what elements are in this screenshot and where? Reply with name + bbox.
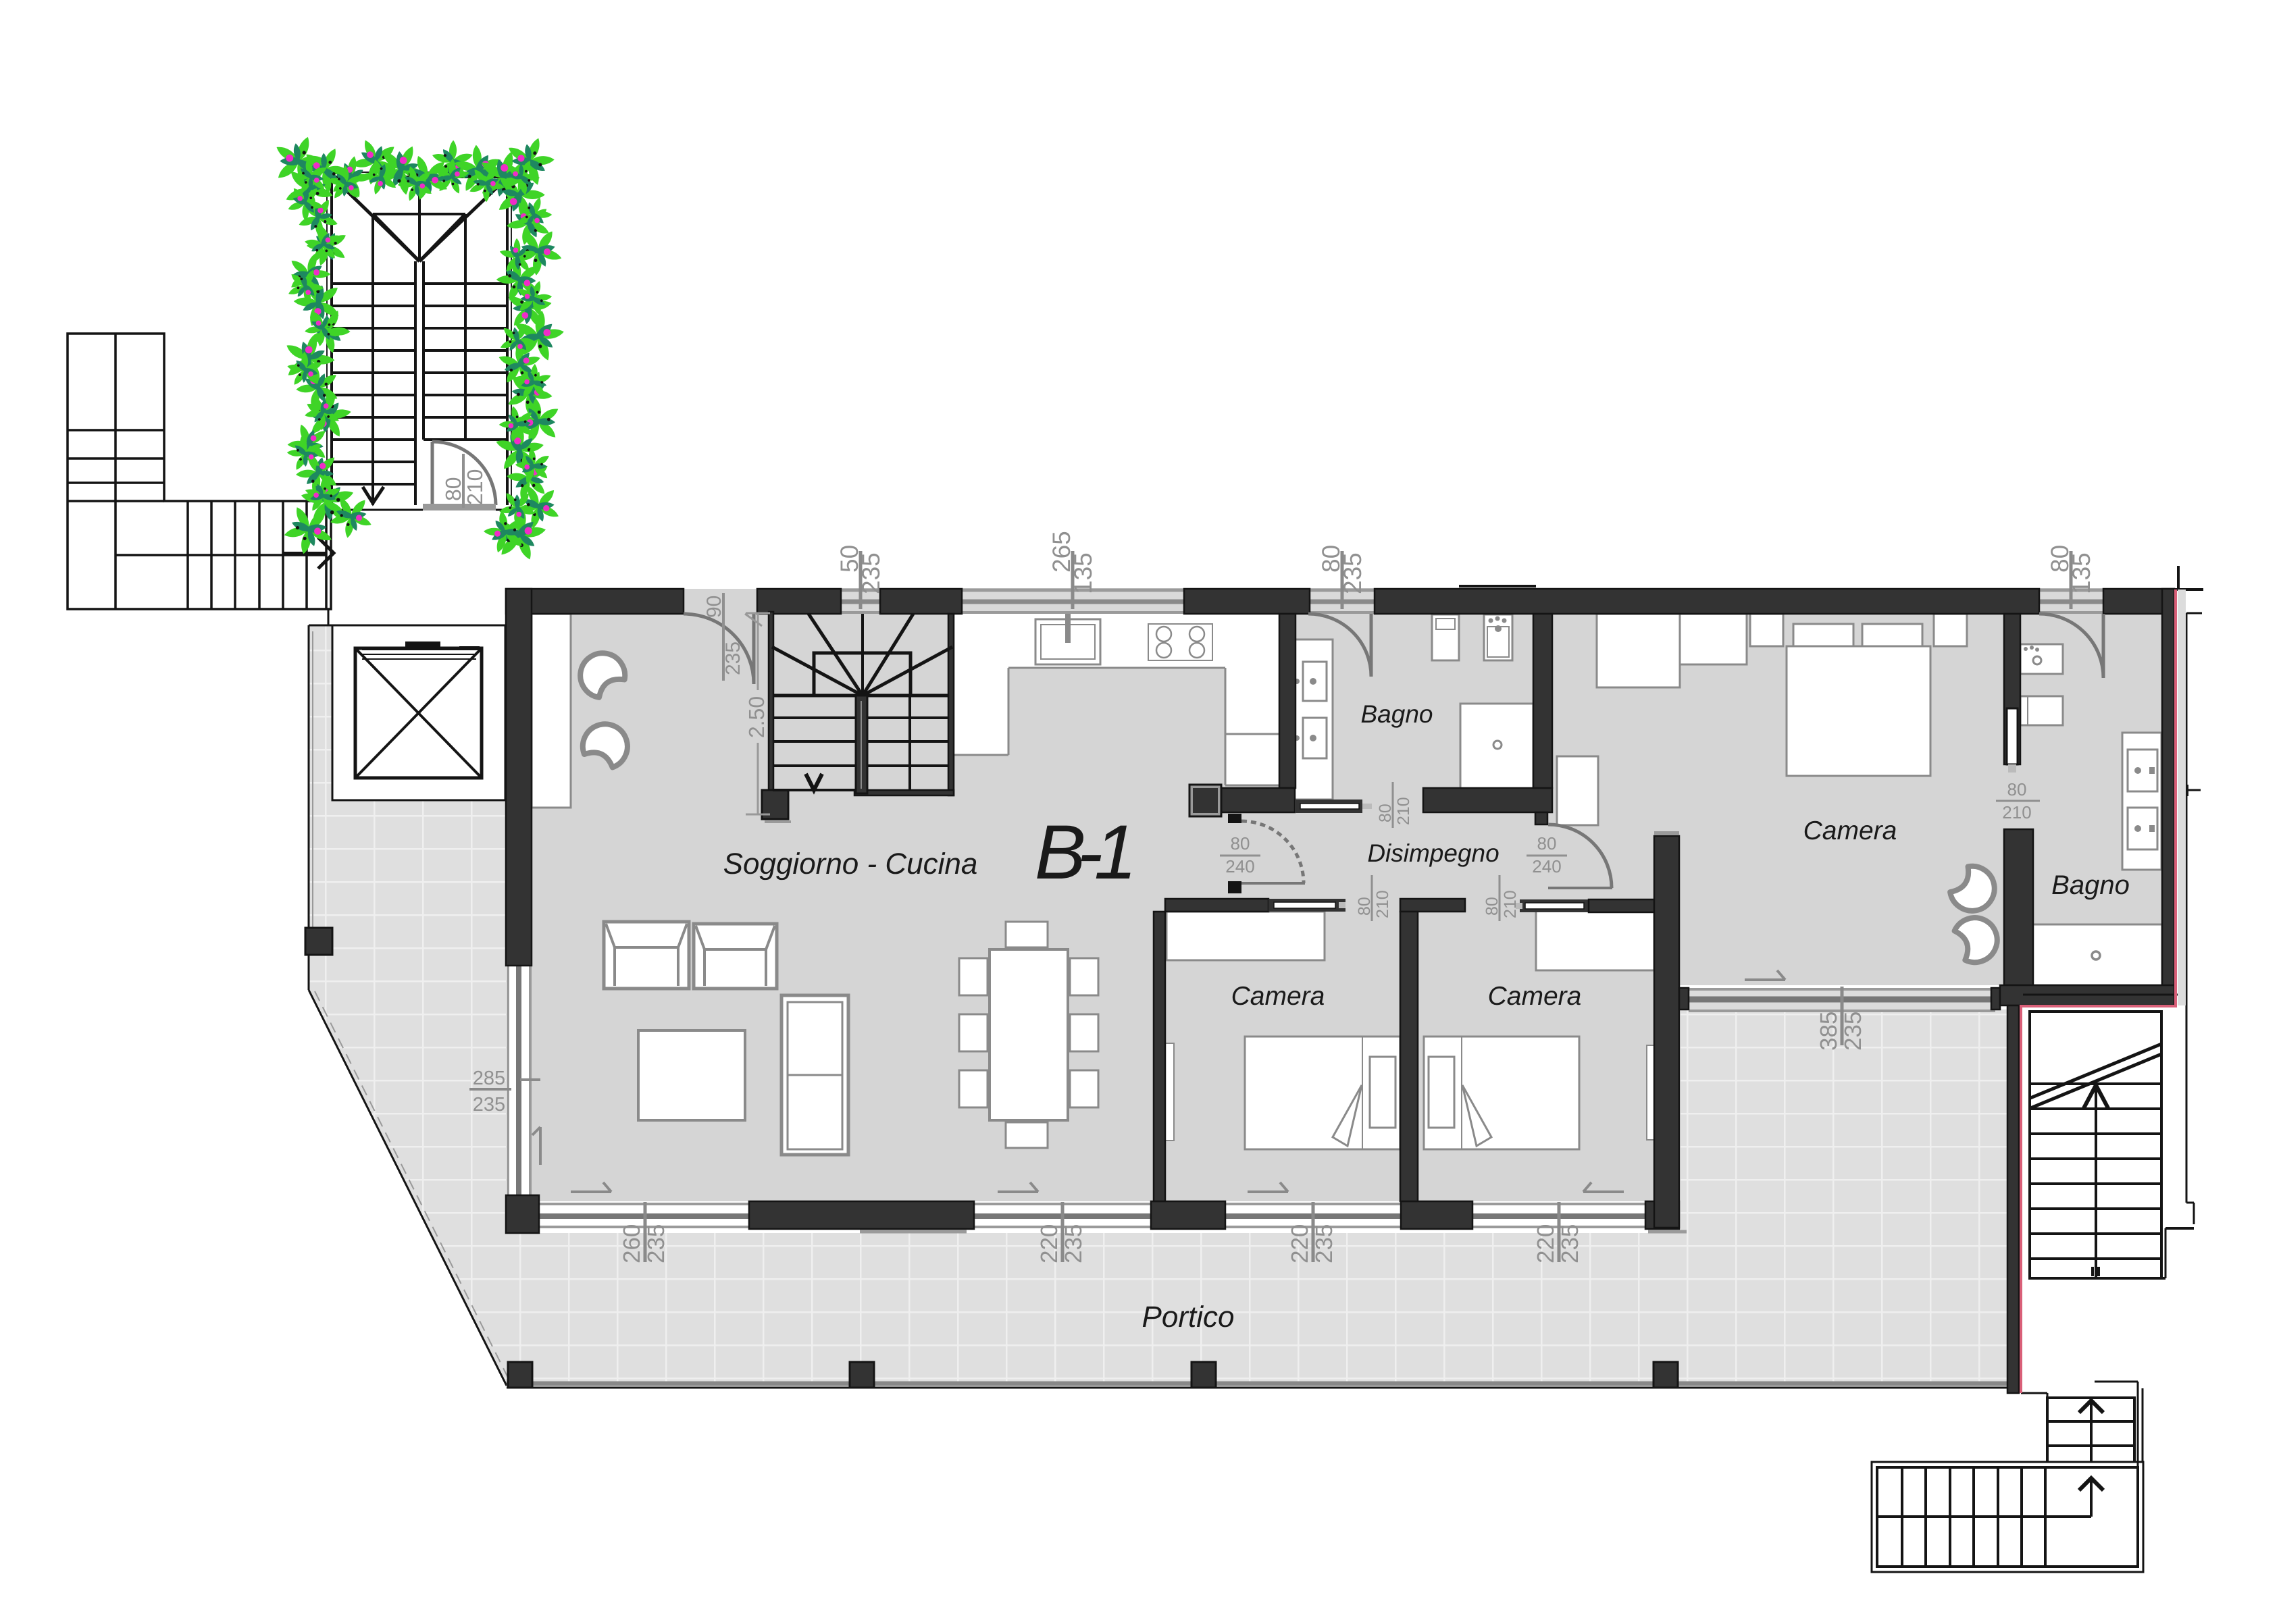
svg-text:235: 235 — [473, 1094, 505, 1116]
svg-text:90: 90 — [703, 596, 725, 618]
svg-text:210: 210 — [1501, 890, 1520, 918]
svg-text:235: 235 — [722, 641, 744, 675]
svg-text:235: 235 — [1840, 1012, 1866, 1051]
svg-text:235: 235 — [857, 552, 885, 594]
svg-text:235: 235 — [1311, 1224, 1337, 1263]
svg-text:220: 220 — [1533, 1224, 1559, 1263]
svg-text:2.50: 2.50 — [744, 696, 769, 738]
svg-text:80: 80 — [1231, 833, 1250, 854]
svg-text:Portico: Portico — [1142, 1301, 1235, 1334]
svg-text:80: 80 — [441, 477, 465, 501]
svg-text:B-1: B-1 — [1035, 810, 1131, 895]
svg-text:Bagno: Bagno — [2051, 870, 2130, 900]
svg-text:80: 80 — [1355, 897, 1374, 916]
svg-text:80: 80 — [1537, 833, 1557, 854]
svg-text:235: 235 — [1339, 552, 1366, 594]
svg-text:210: 210 — [2002, 802, 2031, 822]
svg-text:240: 240 — [1532, 856, 1561, 876]
svg-text:Camera: Camera — [1231, 982, 1325, 1011]
svg-text:285: 285 — [473, 1068, 505, 1089]
svg-text:235: 235 — [643, 1224, 669, 1263]
svg-text:210: 210 — [1394, 797, 1413, 825]
svg-text:80: 80 — [2007, 779, 2027, 800]
svg-text:Camera: Camera — [1803, 816, 1897, 845]
svg-text:Bagno: Bagno — [1361, 700, 1433, 728]
svg-text:Soggiorno - Cucina: Soggiorno - Cucina — [723, 847, 978, 881]
svg-text:135: 135 — [2068, 552, 2095, 594]
svg-text:235: 235 — [1557, 1224, 1583, 1263]
svg-text:80: 80 — [1483, 897, 1502, 916]
svg-text:385: 385 — [1816, 1012, 1842, 1051]
svg-text:240: 240 — [1225, 856, 1254, 876]
svg-text:Disimpegno: Disimpegno — [1367, 839, 1499, 867]
svg-text:210: 210 — [463, 469, 487, 505]
svg-text:80: 80 — [1376, 804, 1395, 822]
svg-text:260: 260 — [619, 1224, 645, 1263]
svg-text:210: 210 — [1373, 890, 1392, 918]
svg-text:135: 135 — [1069, 552, 1097, 594]
svg-text:235: 235 — [1060, 1224, 1087, 1263]
svg-text:220: 220 — [1036, 1224, 1062, 1263]
svg-text:Camera: Camera — [1488, 982, 1582, 1011]
svg-text:220: 220 — [1287, 1224, 1313, 1263]
